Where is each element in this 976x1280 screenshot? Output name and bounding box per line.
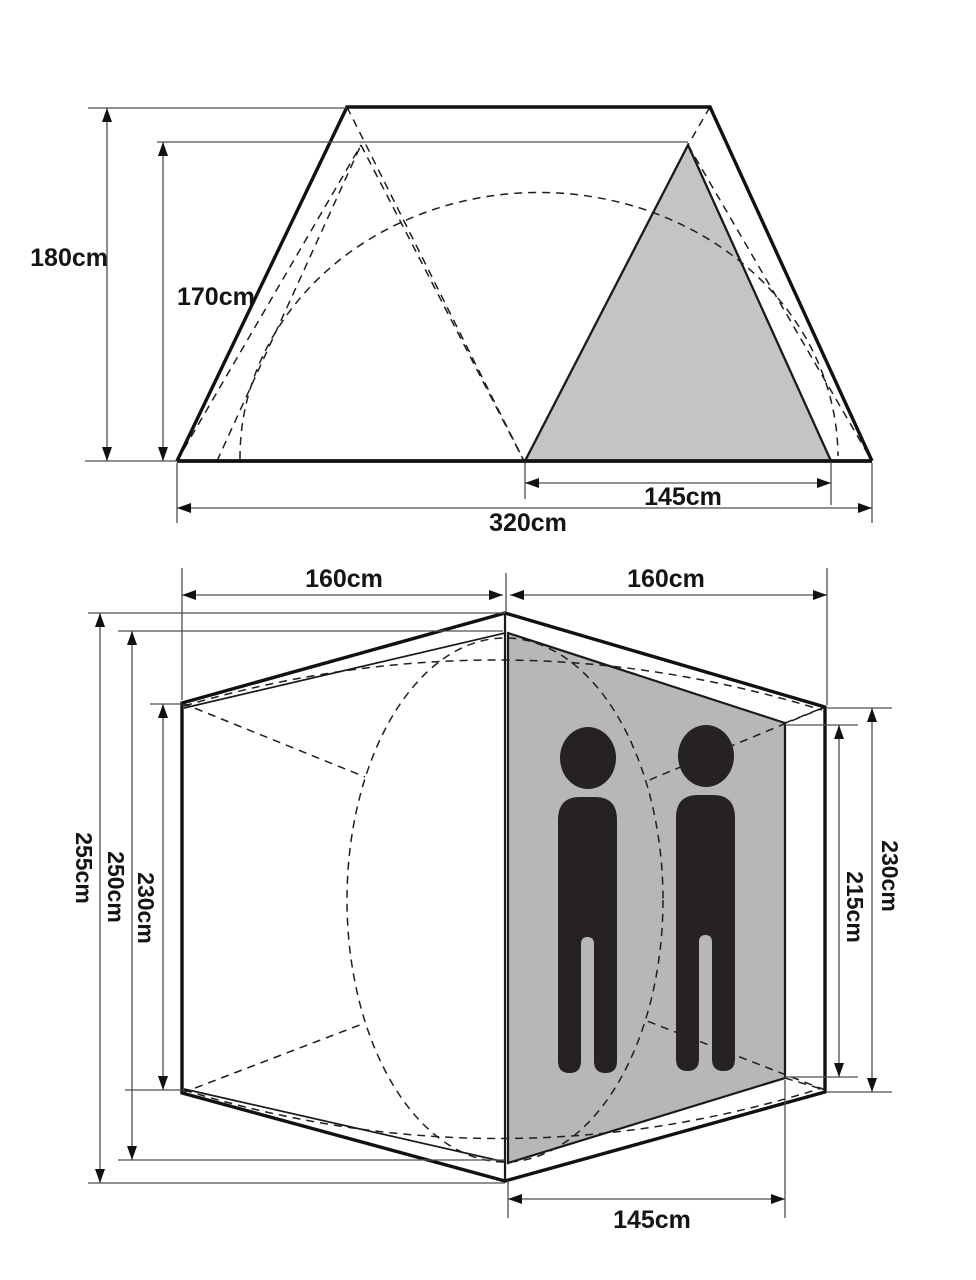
floor-plan-view: 160cm 160cm 255cm 250cm 230cm 215cm 230c… [71, 565, 903, 1234]
dim-label-inner-side-length: 215cm [842, 871, 868, 943]
dim-label-total-length: 255cm [71, 832, 97, 904]
inner-tent-cross-section [525, 145, 831, 461]
diagram-svg: 180cm 170cm 145cm 320cm [0, 0, 976, 1280]
person-head-icon [560, 727, 616, 789]
dim-label-outer-height: 180cm [30, 244, 108, 272]
dim-label-half-width-right: 160cm [627, 565, 705, 593]
dim-label-total-width: 320cm [489, 509, 567, 537]
dim-label-inner-bottom-width: 145cm [613, 1206, 691, 1234]
person-head-icon [678, 725, 734, 787]
dim-label-inner-length: 250cm [103, 851, 129, 923]
inner-tent-floor [508, 633, 785, 1163]
tent-dimension-diagram: 180cm 170cm 145cm 320cm [0, 0, 976, 1280]
dim-label-inner-base-width: 145cm [644, 483, 722, 511]
dim-label-side-length-right: 230cm [877, 840, 903, 912]
dim-label-side-length-left: 230cm [133, 872, 159, 944]
dim-label-inner-height: 170cm [177, 283, 255, 311]
dim-label-half-width-left: 160cm [305, 565, 383, 593]
inner-edge-top-left [184, 633, 505, 708]
inner-edge-bottom-left [184, 1089, 505, 1162]
side-elevation-view: 180cm 170cm 145cm 320cm [30, 107, 872, 537]
